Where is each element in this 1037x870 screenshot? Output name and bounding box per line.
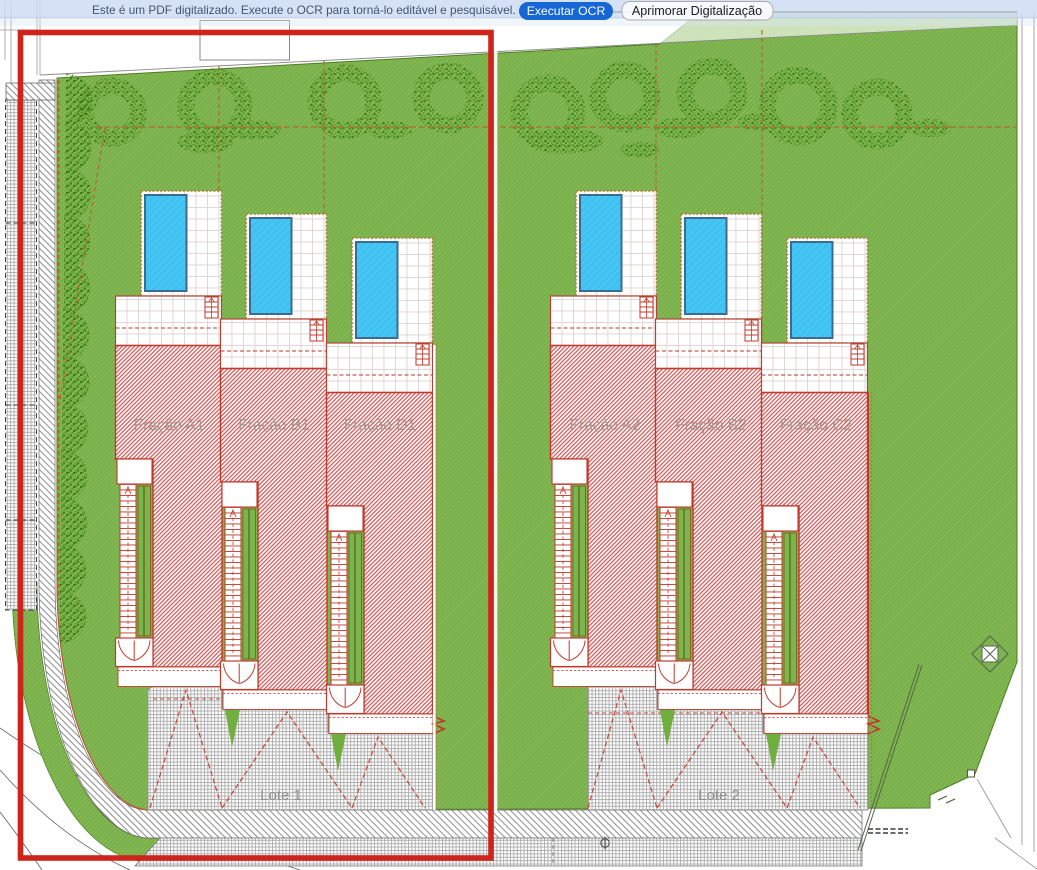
svg-text:Aprimorar Digitalização: Aprimorar Digitalização: [632, 4, 762, 18]
svg-text:Executar OCR: Executar OCR: [527, 4, 606, 18]
svg-text:Fração B1: Fração B1: [238, 417, 310, 434]
svg-text:Fração A1: Fração A1: [134, 417, 205, 434]
svg-text:Fração B2: Fração B2: [675, 417, 747, 434]
svg-text:Este é um PDF digitalizado. Ex: Este é um PDF digitalizado. Execute o OC…: [92, 3, 516, 17]
svg-text:Fração C2: Fração C2: [780, 417, 852, 434]
svg-text:Lote 2: Lote 2: [698, 787, 740, 804]
svg-text:Fração A2: Fração A2: [570, 417, 641, 434]
svg-text:Fração D1: Fração D1: [344, 417, 416, 434]
svg-text:Lote 1: Lote 1: [260, 787, 302, 804]
